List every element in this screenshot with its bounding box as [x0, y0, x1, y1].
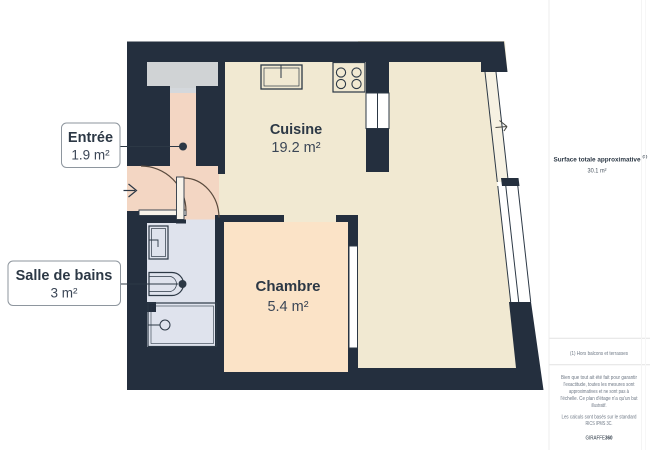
svg-text:GIRAFFE360: GIRAFFE360: [586, 436, 613, 442]
svg-text:1.9 m²: 1.9 m²: [71, 148, 110, 163]
svg-text:Chambre: Chambre: [255, 278, 320, 295]
svg-text:(1) Hors balcons et terrasses: (1) Hors balcons et terrasses: [570, 351, 628, 357]
svg-text:l'échelle. Ce plan d'étage n'a: l'échelle. Ce plan d'étage n'a qu'un but: [561, 396, 638, 402]
svg-text:Cuisine: Cuisine: [270, 122, 322, 138]
svg-text:l'exactitude, toutes les mesur: l'exactitude, toutes les mesures sont: [564, 382, 635, 388]
svg-text:Bien que tout ait été fait pou: Bien que tout ait été fait pour garantir: [561, 375, 637, 381]
svg-text:3 m²: 3 m²: [51, 286, 79, 301]
svg-text:Surface totale approximative: Surface totale approximative: [554, 157, 641, 164]
svg-text:5.4 m²: 5.4 m²: [267, 299, 308, 315]
svg-text:19.2 m²: 19.2 m²: [271, 140, 320, 156]
svg-text:30.1 m²: 30.1 m²: [588, 168, 608, 175]
svg-text:Salle de bains: Salle de bains: [16, 268, 113, 284]
svg-text:approximatives et ne sont pas: approximatives et ne sont pas à: [569, 389, 629, 395]
svg-text:Entrée: Entrée: [68, 130, 113, 146]
svg-text:RICS IPMS 3C.: RICS IPMS 3C.: [586, 421, 613, 427]
svg-text:illustratif.: illustratif.: [592, 403, 607, 409]
svg-text:Les calculs sont basés sur le: Les calculs sont basés sur le standard: [562, 415, 637, 421]
